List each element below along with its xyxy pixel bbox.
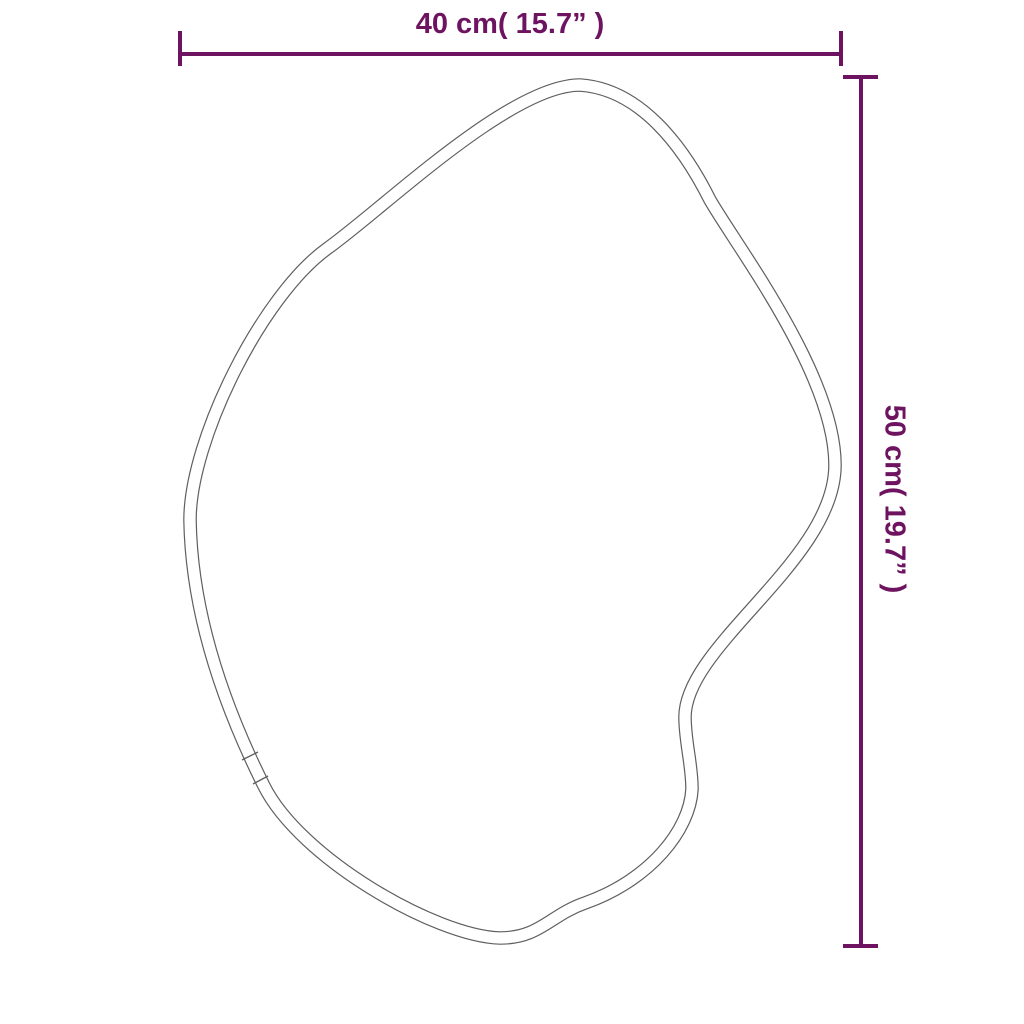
height-dimension-label: 50 cm( 19.7” ) bbox=[878, 405, 911, 594]
mirror-frame-outer-contour bbox=[190, 85, 835, 938]
height-dimension bbox=[843, 77, 878, 946]
mirror-outline-drawing bbox=[0, 0, 1024, 1024]
width-dimension-label: 40 cm( 15.7” ) bbox=[416, 8, 605, 41]
dimension-diagram: 40 cm( 15.7” ) 50 cm( 19.7” ) bbox=[0, 0, 1024, 1024]
